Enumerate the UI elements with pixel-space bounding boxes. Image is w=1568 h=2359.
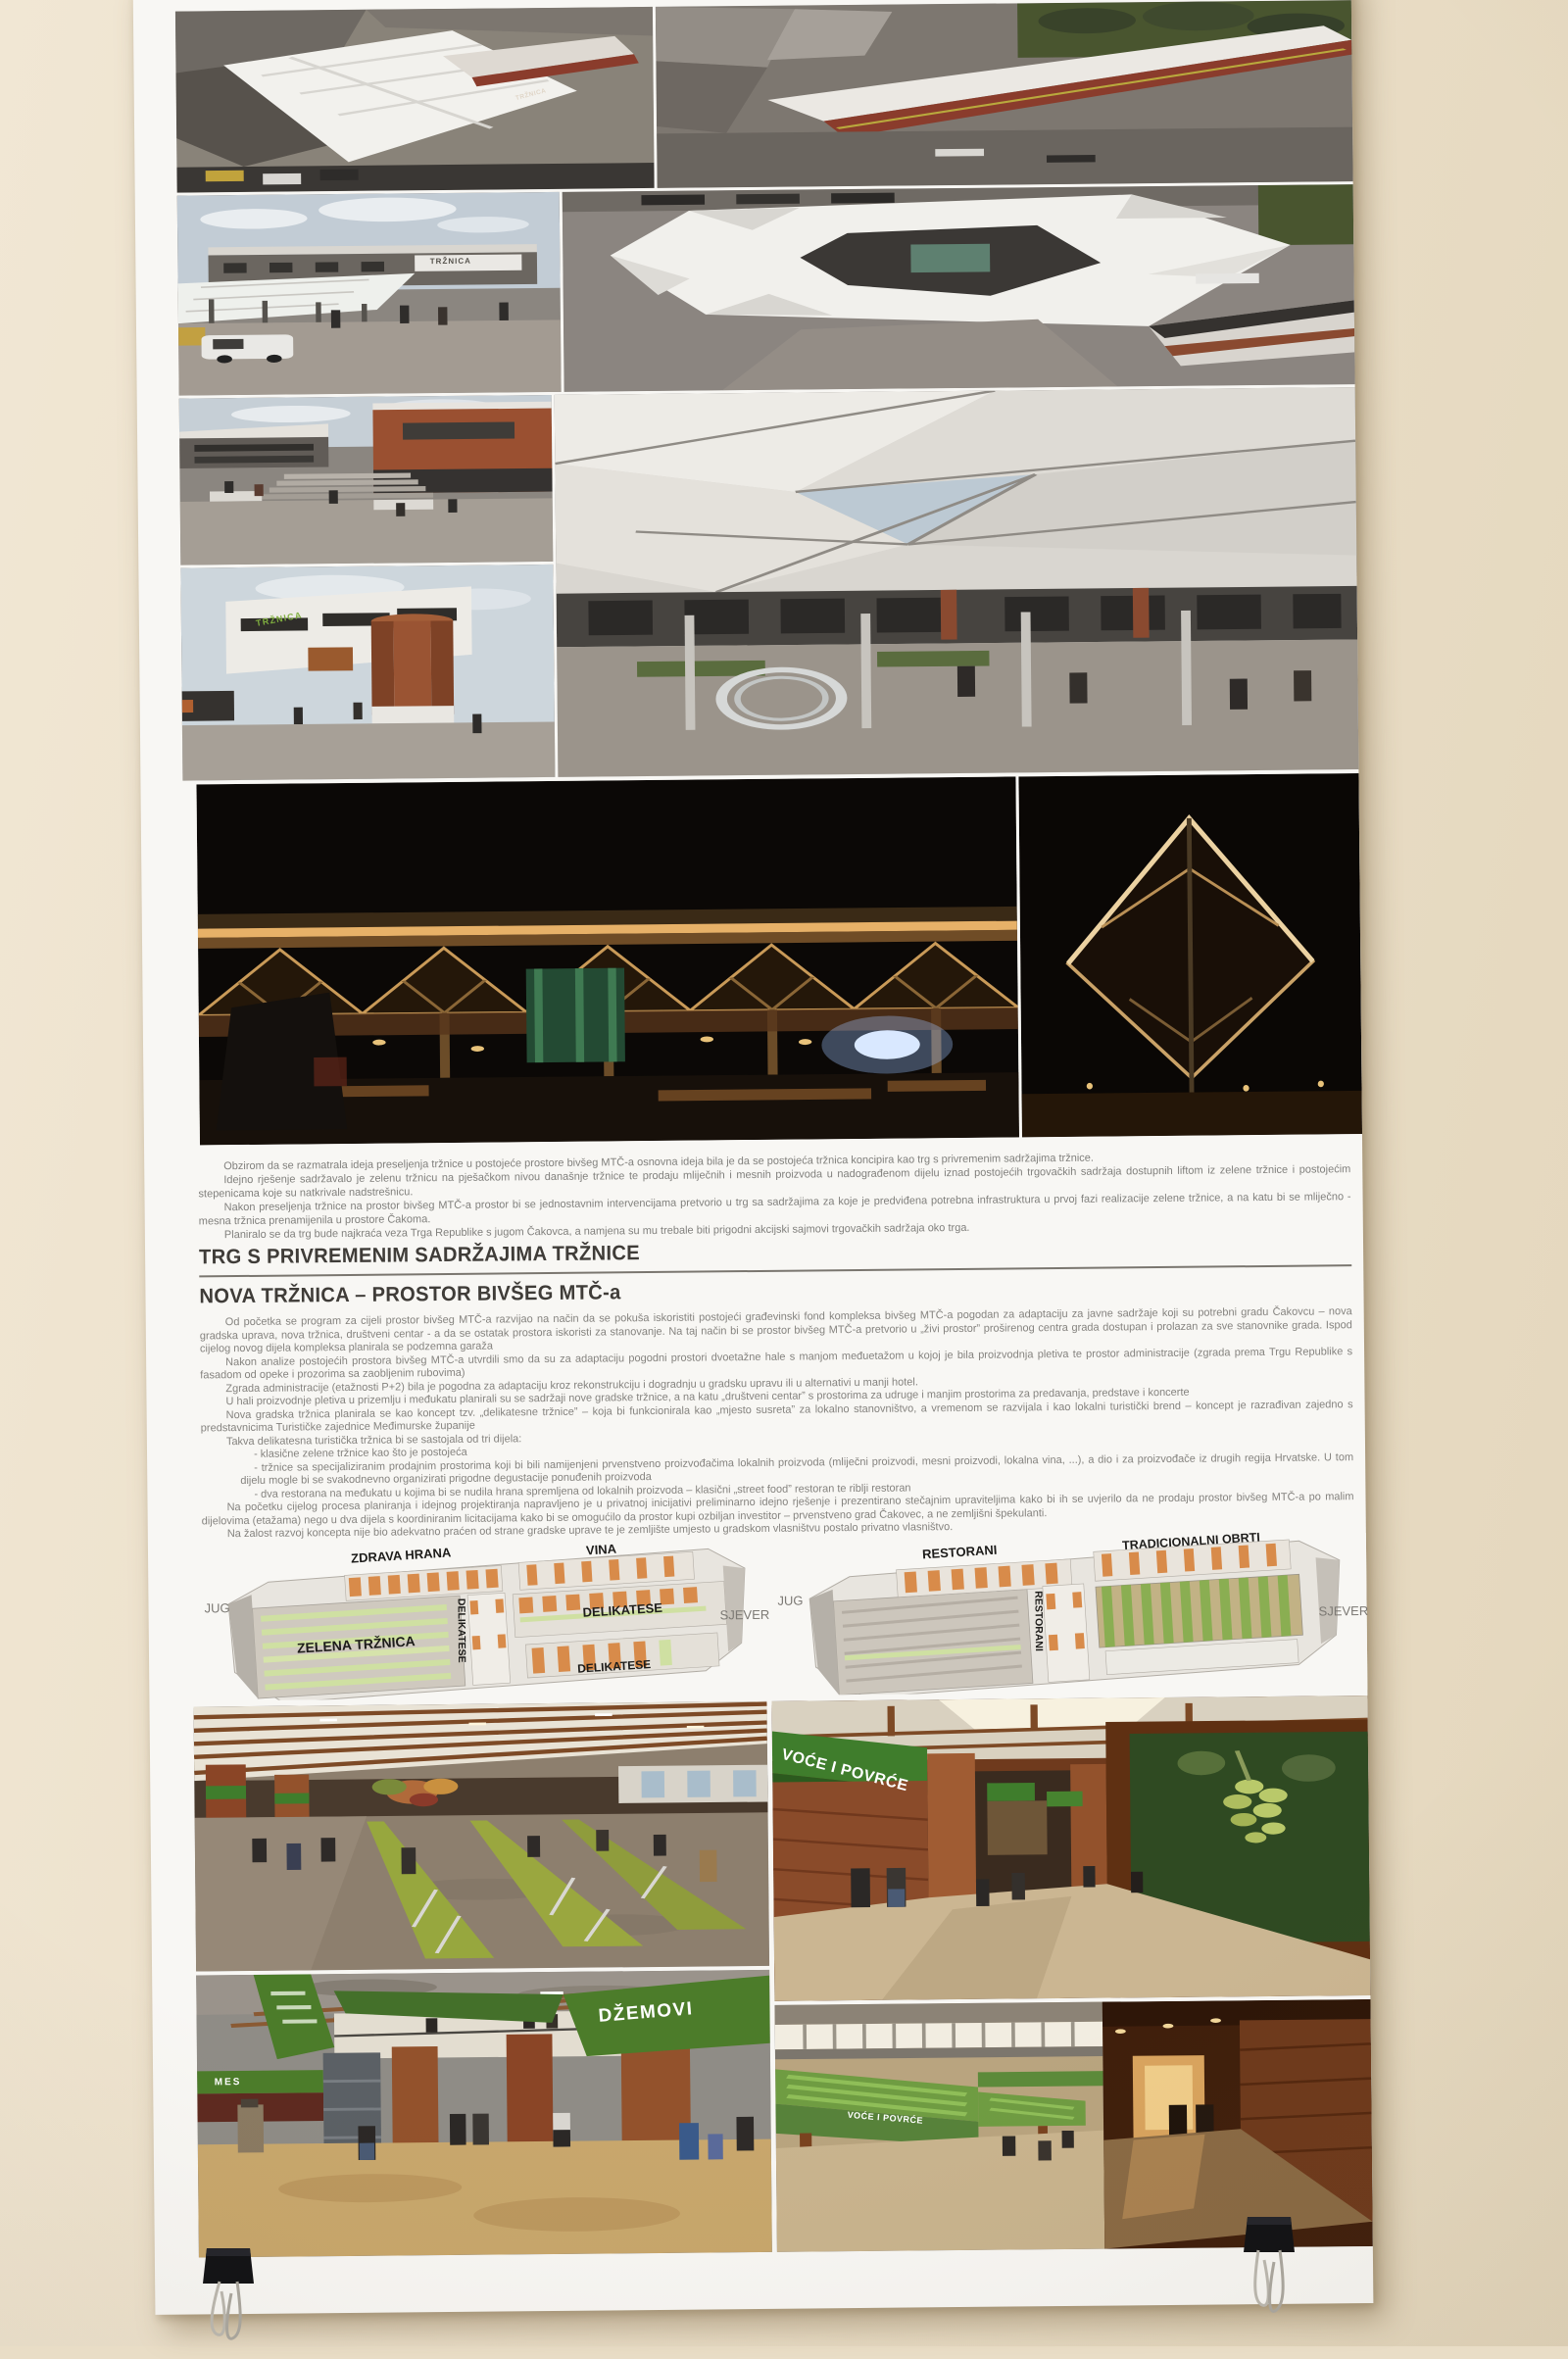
plan-label-restorani-vertical: RESTORANI: [1032, 1591, 1045, 1651]
floor-plan-mezzanine-level: JUG RESTORANI TRADICIONALNI OBRTI RESTOR…: [773, 1533, 1368, 1696]
photo-night-market-canopies: [196, 776, 1018, 1145]
render-street-brick-stairs: [179, 395, 554, 565]
render-interior-green-stalls: VOĆE I POVRĆE: [774, 1999, 1372, 2252]
plan-label-jug: JUG: [204, 1600, 229, 1615]
section-title-nova-trznica: NOVA TRŽNICA – PROSTOR BIVŠEG MTČ-a: [199, 1281, 620, 1308]
render-interior-market-hall: [194, 1701, 770, 1972]
photo-of-poster-on-wall: TRŽNICA: [0, 0, 1568, 2346]
intro-text-block: Obzirom da se razmatrala ideja preseljen…: [198, 1149, 1351, 1242]
plan-label-delikatese-vertical: DELIKATESE: [455, 1598, 467, 1663]
photo-night-diamond-canopy: [1018, 773, 1362, 1137]
body-text-block: Od početka se program za cijeli prostor …: [200, 1305, 1354, 1542]
render-cylindrical-tower: TRŽNICA: [180, 565, 555, 781]
binder-clip-right: [1239, 2217, 1299, 2323]
render-interior-corridor-voce: VOĆE I POVRĆE: [771, 1696, 1370, 2001]
section-title-trg: TRG S PRIVREMENIM SADRŽAJIMA TRŽNICE: [199, 1242, 640, 1269]
plan-label-sjever: SJEVER: [720, 1607, 770, 1622]
plan-label-sjever-right: SJEVER: [1319, 1603, 1369, 1618]
render-aerial-long-building: [656, 0, 1353, 188]
render-canopy-plaza-ring: [555, 387, 1359, 777]
render-aerial-courtyard: [563, 184, 1355, 392]
render-aerial-tent-roofs: TRŽNICA: [175, 7, 655, 193]
floor-plan-market-level: JUG ZDRAVA HRANA VINA DELIKATESE DELIKAT…: [202, 1539, 767, 1701]
plan-label-jug-right: JUG: [777, 1594, 803, 1608]
binder-clip-left: [198, 2248, 259, 2354]
plan-label-vina: VINA: [586, 1542, 617, 1558]
architecture-presentation-poster: TRŽNICA: [133, 0, 1374, 2315]
render-street-canopy: TRŽNICA: [177, 192, 562, 396]
render-interior-dzemovi-hall: MES DŽEMOVI: [196, 1970, 772, 2258]
